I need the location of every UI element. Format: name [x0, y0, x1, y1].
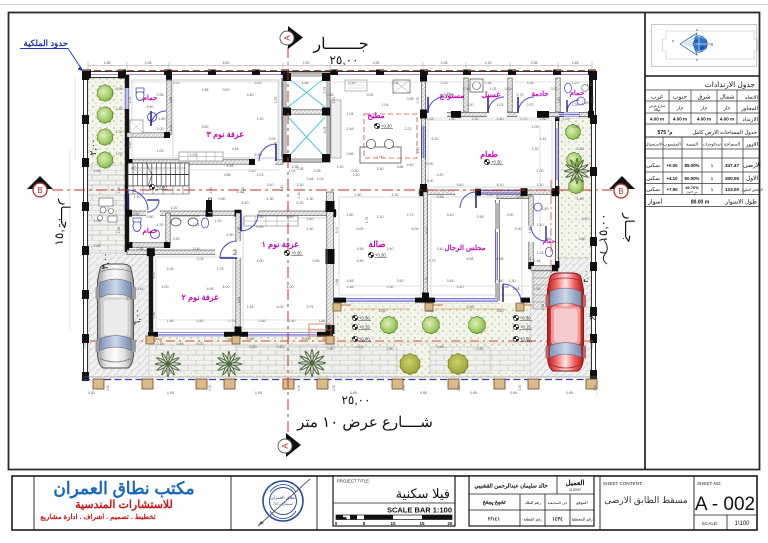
- svg-text:5.40: 5.40: [242, 201, 249, 205]
- svg-text:x: x: [696, 27, 698, 32]
- svg-text:10م: 10م: [654, 108, 660, 112]
- svg-text:0.70: 0.70: [416, 97, 420, 104]
- svg-text:0.85: 0.85: [470, 391, 477, 395]
- svg-text:شــــارع عرض ١٠ متر: شــــارع عرض ١٠ متر: [296, 414, 433, 431]
- svg-text:3.08: 3.08: [527, 81, 534, 85]
- svg-text:خالد سليمان عبدالرحمن القشيبي: خالد سليمان عبدالرحمن القشيبي: [474, 484, 547, 490]
- svg-text:1.03: 1.03: [157, 149, 164, 153]
- svg-text:4.58: 4.58: [357, 247, 364, 251]
- svg-text:5.00: 5.00: [335, 227, 339, 234]
- svg-text:جـــار: جـــار: [57, 198, 73, 229]
- svg-text:SHEET NO:: SHEET NO:: [697, 481, 722, 486]
- svg-text:0.90: 0.90: [257, 225, 264, 229]
- svg-text:SCALE:: SCALE:: [701, 521, 718, 527]
- svg-text:المجاور: المجاور: [740, 105, 758, 112]
- svg-text:0.04: 0.04: [367, 93, 374, 97]
- svg-text:سكنى: سكنى: [646, 176, 660, 182]
- svg-text:3.40: 3.40: [437, 247, 444, 251]
- svg-text:3.75: 3.75: [323, 87, 327, 94]
- svg-text:1.00: 1.00: [532, 125, 539, 129]
- svg-text:1.20: 1.20: [157, 223, 164, 227]
- svg-text:1.80: 1.80: [542, 207, 549, 211]
- svg-text:0.90: 0.90: [517, 195, 524, 199]
- svg-text:1.03: 1.03: [257, 173, 264, 177]
- svg-text:مطبخ: مطبخ: [367, 111, 384, 121]
- svg-text:0.80: 0.80: [277, 345, 284, 349]
- svg-text:1\100: 1\100: [734, 521, 750, 527]
- svg-text:1.04: 1.04: [347, 112, 354, 116]
- svg-text:الاستعمال: الاستعمال: [645, 142, 662, 147]
- svg-text:2.80: 2.80: [197, 319, 204, 323]
- svg-text:3.75: 3.75: [274, 97, 278, 104]
- svg-text:+0.15: +0.15: [520, 325, 531, 330]
- svg-text:3.40: 3.40: [487, 193, 494, 197]
- svg-text:الاتجاه: الاتجاه: [745, 95, 758, 101]
- svg-text:15: 15: [419, 521, 425, 526]
- svg-text:0.90: 0.90: [147, 105, 154, 109]
- svg-text:4.30: 4.30: [392, 193, 399, 197]
- svg-text:1.30: 1.30: [528, 257, 532, 264]
- svg-text:1.80: 1.80: [116, 107, 123, 111]
- svg-text:1.78: 1.78: [217, 267, 224, 271]
- svg-text:0.30: 0.30: [106, 385, 110, 391]
- svg-text:جنوب: جنوب: [673, 95, 688, 101]
- svg-text:1.50: 1.50: [353, 173, 360, 177]
- svg-text:2.40: 2.40: [280, 185, 284, 192]
- svg-text:2.30: 2.30: [297, 183, 304, 187]
- svg-text:300.05: 300.05: [725, 176, 739, 181]
- svg-text:0.80: 0.80: [133, 212, 140, 216]
- svg-text:الموقع: الموقع: [576, 500, 587, 505]
- svg-text:2.08: 2.08: [145, 61, 152, 65]
- svg-text:4.84: 4.84: [237, 297, 241, 304]
- svg-text:1.03: 1.03: [444, 92, 451, 96]
- svg-text:1.30: 1.30: [257, 117, 264, 121]
- svg-text:575 م²: 575 م²: [657, 130, 672, 136]
- svg-text:+0.00: +0.00: [359, 337, 370, 342]
- svg-text:٢/١٤١: ٢/١٤١: [488, 517, 500, 523]
- svg-text:2.58: 2.58: [477, 215, 484, 219]
- svg-text:رقم القطعة: رقم القطعة: [523, 517, 542, 522]
- svg-text:0.98: 0.98: [169, 97, 173, 104]
- svg-text:SCALE BAR 1:100: SCALE BAR 1:100: [387, 506, 452, 515]
- svg-text:2.08: 2.08: [441, 61, 448, 65]
- svg-text:0.86: 0.86: [347, 152, 354, 156]
- svg-text:0.30: 0.30: [518, 385, 522, 391]
- svg-text:2.30: 2.30: [467, 103, 474, 107]
- svg-text:5.00: 5.00: [425, 227, 429, 234]
- svg-text:0.20: 0.20: [437, 173, 444, 177]
- svg-text:2.58: 2.58: [437, 195, 444, 199]
- svg-text:1.03: 1.03: [490, 87, 497, 91]
- svg-text:2.38: 2.38: [297, 167, 304, 171]
- svg-text:1.18: 1.18: [513, 287, 520, 291]
- svg-text:80.00%: 80.00%: [685, 176, 700, 181]
- svg-text:1.88: 1.88: [104, 61, 111, 65]
- svg-text:مكتب نطاق العمران: مكتب نطاق العمران: [53, 479, 194, 499]
- svg-text:2.55: 2.55: [128, 142, 132, 149]
- svg-text:٦,٠٠: ٦,٠٠: [132, 308, 142, 325]
- svg-text:85.00%: 85.00%: [685, 163, 700, 168]
- svg-text:2.09: 2.09: [269, 137, 276, 141]
- svg-text:0.70: 0.70: [517, 93, 524, 97]
- svg-text:جـــار: جـــار: [621, 212, 637, 243]
- svg-text:1.50: 1.50: [94, 169, 101, 173]
- svg-text:غرفة نوم ٣: غرفة نوم ٣: [207, 130, 245, 140]
- svg-text:+7.90: +7.90: [666, 187, 678, 192]
- svg-text:0.90: 0.90: [327, 347, 334, 351]
- svg-text:2.88: 2.88: [94, 244, 101, 248]
- svg-text:CLIENT: CLIENT: [569, 488, 581, 492]
- svg-text:4.00: 4.00: [127, 297, 134, 301]
- svg-text:1.80: 1.80: [497, 117, 504, 121]
- svg-text:A: A: [281, 443, 290, 449]
- svg-text:تخطيط . تصميم . اشراف . ادارة: تخطيط . تصميم . اشراف . ادارة مشاريع: [40, 513, 155, 521]
- svg-text:2.73: 2.73: [407, 213, 414, 217]
- svg-text:2.08: 2.08: [427, 117, 434, 121]
- svg-text:3.45: 3.45: [447, 279, 454, 283]
- svg-text:5.90: 5.90: [357, 259, 364, 263]
- svg-text:0.85: 0.85: [88, 391, 95, 395]
- svg-text:0.98: 0.98: [247, 337, 254, 341]
- svg-text:0.30: 0.30: [402, 385, 406, 391]
- svg-text:1.86: 1.86: [152, 312, 156, 319]
- svg-text:4.90: 4.90: [287, 215, 294, 219]
- svg-text:80.00 m: 80.00 m: [691, 200, 710, 206]
- svg-text:6.10: 6.10: [432, 137, 439, 141]
- svg-text:6.58: 6.58: [467, 257, 474, 261]
- svg-text:+0.00: +0.00: [520, 337, 531, 342]
- svg-text:شرق: شرق: [698, 95, 711, 101]
- svg-text:0.30: 0.30: [208, 385, 212, 391]
- svg-text:1.80: 1.80: [449, 117, 456, 121]
- svg-text:SHEET CONTENT:: SHEET CONTENT:: [603, 481, 642, 486]
- svg-text:فيلا سكنية: فيلا سكنية: [396, 486, 450, 501]
- svg-text:123.00: 123.00: [725, 187, 739, 192]
- svg-text:0.98: 0.98: [497, 257, 504, 261]
- svg-text:0.98: 0.98: [407, 97, 414, 101]
- svg-text:0.98: 0.98: [116, 87, 123, 91]
- svg-text:2.09: 2.09: [274, 142, 278, 149]
- svg-text:0.90: 0.90: [387, 347, 394, 351]
- svg-text:2.80: 2.80: [289, 319, 296, 323]
- svg-text:0.30: 0.30: [297, 385, 301, 391]
- svg-text:0.90: 0.90: [497, 279, 504, 283]
- svg-text:1.29: 1.29: [572, 81, 579, 85]
- svg-text:5.50: 5.50: [255, 81, 262, 85]
- svg-text:1.50: 1.50: [377, 167, 384, 171]
- svg-text:747استشارات: 747استشارات: [273, 502, 293, 506]
- svg-text:2.06: 2.06: [197, 257, 204, 261]
- svg-text:جار: جار: [722, 106, 730, 112]
- svg-text:طول الاسوار: طول الاسوار: [724, 199, 757, 206]
- svg-text:رقم المخطط: رقم المخطط: [572, 517, 593, 522]
- svg-text:1.18: 1.18: [537, 251, 544, 255]
- svg-text:0.50: 0.50: [223, 88, 230, 92]
- svg-text:0.90: 0.90: [507, 213, 514, 217]
- svg-text:1.30: 1.30: [307, 197, 314, 201]
- svg-text:1.20: 1.20: [215, 219, 222, 223]
- svg-text:١٥,٠٠: ١٥,٠٠: [596, 213, 610, 242]
- svg-text:1.80: 1.80: [582, 217, 589, 221]
- svg-text:1.65: 1.65: [572, 61, 579, 65]
- svg-text:0.30: 0.30: [463, 87, 470, 91]
- svg-text:0.85: 0.85: [573, 125, 580, 129]
- svg-text:٢٥,٠٠: ٢٥,٠٠: [341, 393, 370, 407]
- svg-text:347.47: 347.47: [725, 163, 739, 168]
- svg-text:0.30: 0.30: [505, 87, 512, 91]
- svg-text:1.50: 1.50: [307, 227, 314, 231]
- svg-text:0.98: 0.98: [437, 345, 444, 349]
- svg-text:4.09: 4.09: [323, 127, 327, 134]
- svg-text:1.29: 1.29: [563, 117, 570, 121]
- svg-text:5.40: 5.40: [457, 183, 464, 187]
- svg-text:٣,٠٠: ٣,٠٠: [100, 252, 110, 269]
- svg-text:0.45: 0.45: [157, 342, 164, 346]
- svg-text:0.85: 0.85: [566, 391, 573, 395]
- svg-text:سكنى: سكنى: [646, 163, 660, 169]
- svg-text:1.03: 1.03: [190, 153, 197, 157]
- svg-text:1.88: 1.88: [202, 88, 209, 92]
- svg-text:طعام: طعام: [480, 150, 498, 160]
- svg-text:1.30: 1.30: [241, 187, 245, 194]
- svg-text:مسقط الطابق الارضى: مسقط الطابق الارضى: [604, 495, 688, 506]
- svg-text:0.80: 0.80: [147, 215, 154, 219]
- svg-text:2.50: 2.50: [441, 81, 448, 85]
- svg-text:1.03: 1.03: [317, 177, 324, 181]
- svg-text:4.00: 4.00: [277, 305, 284, 309]
- svg-text:1: 1: [711, 187, 714, 193]
- svg-text:+0.30: +0.30: [375, 253, 386, 258]
- svg-text:+0.30: +0.30: [291, 251, 302, 256]
- svg-text:سكنى: سكنى: [646, 187, 660, 193]
- svg-text:2.50: 2.50: [387, 285, 394, 289]
- svg-text:4.00: 4.00: [223, 285, 230, 289]
- svg-text:5.00: 5.00: [412, 227, 419, 231]
- svg-text:0.50: 0.50: [349, 81, 356, 85]
- svg-text:2.35: 2.35: [531, 61, 538, 65]
- svg-text:1.20: 1.20: [377, 215, 384, 219]
- svg-text:1.30: 1.30: [297, 192, 301, 199]
- svg-text:3.00: 3.00: [197, 342, 204, 346]
- svg-text:4.00 m: 4.00 m: [697, 117, 711, 122]
- svg-text:حمام: حمام: [570, 89, 585, 97]
- svg-text:0.70: 0.70: [527, 103, 534, 107]
- svg-text:خادمة: خادمة: [531, 90, 548, 98]
- svg-text:4.00: 4.00: [287, 285, 294, 289]
- svg-text:+0.00: +0.00: [666, 163, 678, 168]
- svg-text:مجلس الرجال: مجلس الرجال: [445, 244, 486, 252]
- svg-text:شمال: شمال: [720, 94, 735, 101]
- svg-text:2.58: 2.58: [427, 309, 434, 313]
- svg-text:3.40: 3.40: [447, 213, 454, 217]
- svg-text:B: B: [37, 186, 42, 195]
- svg-text:1.28: 1.28: [572, 103, 579, 107]
- svg-text:0.85: 0.85: [510, 391, 517, 395]
- svg-text:1.48: 1.48: [528, 227, 532, 234]
- svg-text:3.50: 3.50: [202, 125, 209, 129]
- svg-text:1.28: 1.28: [582, 101, 589, 105]
- svg-text:5.00: 5.00: [357, 227, 364, 231]
- svg-text:4.00: 4.00: [152, 272, 156, 279]
- svg-text:0.80: 0.80: [219, 197, 226, 201]
- svg-text:1.80: 1.80: [540, 117, 547, 121]
- svg-text:1.85: 1.85: [379, 309, 386, 313]
- svg-text:0.90: 0.90: [250, 345, 257, 349]
- svg-text:1.03: 1.03: [116, 152, 123, 156]
- svg-text:2.90: 2.90: [173, 237, 180, 241]
- svg-text:1.00: 1.00: [157, 127, 164, 131]
- svg-text:0.40: 0.40: [307, 217, 314, 221]
- svg-text:0.98: 0.98: [541, 304, 545, 311]
- svg-text:2.90: 2.90: [227, 233, 234, 237]
- svg-text:الارضى: الارضى: [743, 162, 761, 169]
- svg-text:0.40: 0.40: [407, 163, 414, 167]
- svg-text:3.80: 3.80: [577, 147, 584, 151]
- svg-text:6.10: 6.10: [497, 183, 504, 187]
- svg-text:1.30: 1.30: [257, 215, 264, 219]
- svg-text:B: B: [618, 187, 623, 196]
- svg-text:1.00: 1.00: [169, 125, 173, 132]
- svg-text:رقم الملك: رقم الملك: [524, 500, 540, 505]
- svg-text:4.58: 4.58: [373, 61, 380, 65]
- svg-text:ٿڅچځ-ڀڃڅڅ: ٿڅچځ-ڀڃڅڅ: [483, 499, 507, 506]
- svg-text:4.00 m: 4.00 m: [720, 117, 734, 122]
- svg-text:A: A: [283, 35, 292, 41]
- svg-text:1.80: 1.80: [577, 197, 584, 201]
- svg-text:5.50: 5.50: [255, 153, 262, 157]
- svg-text:عددالوحدات: عددالوحدات: [702, 142, 721, 147]
- svg-text:حمام: حمام: [143, 94, 158, 102]
- svg-text:1.03: 1.03: [497, 103, 504, 107]
- svg-text:0.30: 0.30: [83, 342, 87, 349]
- svg-text:2.50: 2.50: [387, 247, 394, 251]
- svg-text:4.08: 4.08: [207, 287, 214, 291]
- svg-text:٢٥,٠٠: ٢٥,٠٠: [329, 53, 358, 67]
- svg-text:1.30: 1.30: [267, 197, 274, 201]
- svg-text:4.48: 4.48: [227, 164, 234, 168]
- svg-text:جار: جار: [699, 106, 707, 112]
- svg-text:2.73: 2.73: [425, 277, 429, 284]
- svg-text:0.98: 0.98: [591, 97, 595, 104]
- svg-text:+0.30: +0.30: [359, 316, 370, 321]
- svg-text:A - 002: A - 002: [695, 494, 755, 515]
- svg-text:3.40: 3.40: [497, 309, 504, 313]
- svg-text:الارض كامل -: الارض كامل -: [692, 130, 722, 136]
- svg-text:المساحة: المساحة: [724, 142, 740, 147]
- svg-text:1.60: 1.60: [472, 117, 479, 121]
- svg-text:3.80: 3.80: [579, 237, 586, 241]
- svg-text:0.85: 0.85: [420, 391, 427, 395]
- svg-text:1.75: 1.75: [365, 217, 369, 224]
- svg-text:0.75: 0.75: [307, 305, 314, 309]
- svg-text:1.40: 1.40: [540, 137, 547, 141]
- svg-text:1.04: 1.04: [382, 103, 389, 107]
- svg-text:1.48: 1.48: [247, 305, 254, 309]
- svg-text:3.40: 3.40: [457, 285, 464, 289]
- svg-text:4.00 m: 4.00 m: [673, 117, 687, 122]
- svg-text:الاول: الاول: [746, 175, 758, 182]
- svg-text:0.48: 0.48: [307, 177, 314, 181]
- svg-text:2.48: 2.48: [347, 127, 354, 131]
- svg-text:1.30: 1.30: [545, 237, 552, 241]
- svg-text:0.98: 0.98: [335, 279, 339, 286]
- svg-text:+0.80: +0.80: [156, 185, 167, 190]
- svg-text:+4.10: +4.10: [666, 176, 678, 181]
- svg-text:غرفة نوم ٢: غرفة نوم ٢: [182, 293, 220, 303]
- svg-text:غسيل: غسيل: [482, 90, 502, 99]
- svg-text:حدود الملكية: حدود الملكية: [24, 38, 69, 49]
- svg-text:2.40: 2.40: [249, 169, 256, 173]
- svg-text:1.30: 1.30: [337, 165, 344, 169]
- svg-text:3.75: 3.75: [332, 97, 336, 104]
- svg-text:0.85: 0.85: [255, 391, 262, 395]
- svg-text:٢,٠٠: ٢,٠٠: [88, 138, 98, 155]
- svg-text:للاستشارات المندسية: للاستشارات المندسية: [75, 499, 173, 511]
- svg-text:2.06: 2.06: [193, 247, 200, 251]
- svg-text:x: x: [696, 57, 698, 62]
- svg-text:1: 1: [711, 176, 714, 182]
- svg-text:٣,٠٠: ٣,٠٠: [583, 269, 590, 282]
- svg-text:1.00: 1.00: [173, 81, 180, 85]
- svg-text:4.30: 4.30: [297, 201, 304, 205]
- svg-text:2.08: 2.08: [392, 81, 399, 85]
- svg-text:1.78: 1.78: [237, 227, 241, 234]
- svg-text:5.65: 5.65: [313, 259, 320, 263]
- svg-text:2.73: 2.73: [429, 259, 436, 263]
- svg-text:2.30: 2.30: [303, 61, 310, 65]
- svg-text:حى الصحيفية: حى الصحيفية: [548, 500, 568, 505]
- svg-text:1.10: 1.10: [134, 195, 141, 199]
- svg-text:العميل: العميل: [566, 479, 585, 487]
- svg-text:4.00: 4.00: [162, 285, 169, 289]
- svg-text:الارتداد: الارتداد: [742, 116, 758, 123]
- svg-text:+0.15: +0.15: [359, 325, 370, 330]
- svg-text:0.90: 0.90: [427, 162, 434, 166]
- svg-text:الا̱دور: الا̱دور: [745, 141, 759, 148]
- svg-text:x: x: [711, 42, 713, 47]
- svg-text:غرفة نوم ١: غرفة نوم ١: [262, 240, 300, 250]
- svg-text:4.00 m: 4.00 m: [650, 117, 664, 122]
- svg-text:1.20: 1.20: [171, 206, 178, 210]
- svg-text:4.58: 4.58: [347, 285, 354, 289]
- svg-text:0.30: 0.30: [332, 385, 336, 391]
- svg-text:0.90: 0.90: [477, 347, 484, 351]
- svg-text:1.86: 1.86: [167, 319, 174, 323]
- svg-text:5.00: 5.00: [515, 227, 522, 231]
- svg-text:0.90: 0.90: [302, 337, 309, 341]
- svg-text:x: x: [672, 38, 674, 43]
- svg-text:0.30: 0.30: [590, 342, 594, 349]
- svg-text:1.30: 1.30: [209, 187, 213, 194]
- svg-text:0.98: 0.98: [157, 93, 164, 97]
- svg-text:1.03: 1.03: [289, 169, 296, 173]
- svg-text:1.50: 1.50: [117, 187, 121, 194]
- svg-text:1.99: 1.99: [94, 219, 101, 223]
- svg-text:0.86: 0.86: [259, 319, 266, 323]
- svg-text:2.30: 2.30: [532, 147, 539, 151]
- svg-text:0.48: 0.48: [327, 93, 334, 97]
- svg-text:+0.30: +0.30: [520, 316, 531, 321]
- svg-text:1.86: 1.86: [319, 319, 326, 323]
- svg-text:1.88: 1.88: [302, 81, 309, 85]
- svg-text:حمام: حمام: [143, 227, 158, 235]
- svg-text:جـــــــار: جـــــــار: [312, 36, 368, 53]
- svg-text:0.30: 0.30: [457, 385, 461, 391]
- svg-text:+0.30: +0.30: [381, 124, 392, 129]
- svg-text:20: 20: [447, 521, 453, 526]
- svg-text:2.22: 2.22: [405, 127, 412, 131]
